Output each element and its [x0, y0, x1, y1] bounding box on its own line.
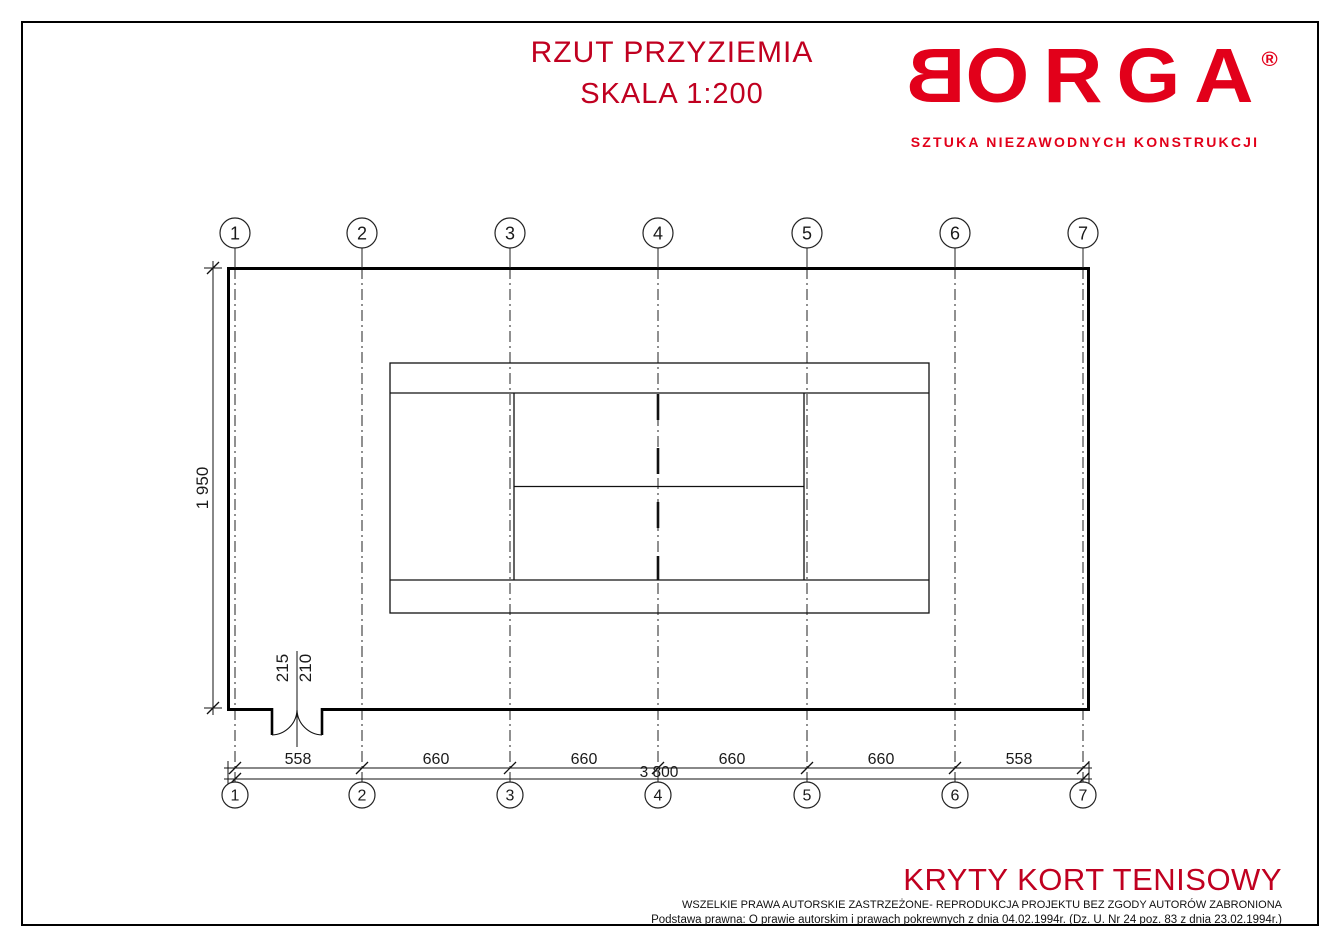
dimension-left: 1 950 [193, 261, 222, 715]
dim-segment-label: 660 [719, 751, 746, 768]
grid-bubble-label: 7 [1078, 224, 1088, 244]
door-dim-clear: 210 [296, 654, 315, 682]
court-outline [390, 363, 929, 613]
grid-bubble-label: 4 [653, 224, 663, 244]
door-swing-arc-left [272, 710, 297, 735]
grid-bubble-label: 2 [358, 788, 367, 805]
dim-segment-label: 558 [285, 751, 312, 768]
door-swing-arc-right [297, 710, 322, 735]
drawing-sheet: RZUT PRZYZIEMIA SKALA 1:200 BORGA® SZTUK… [0, 0, 1337, 943]
grid-bubble-label: 6 [950, 224, 960, 244]
title-block-footer: KRYTY KORT TENISOWY WSZELKIE PRAWA AUTOR… [651, 864, 1282, 927]
legal-basis: Podstawa prawna: O prawie autorskim i pr… [651, 913, 1282, 927]
grid-bubble-label: 3 [505, 224, 515, 244]
grid-bubbles-top: 1 2 3 4 5 6 7 [220, 218, 1098, 268]
grid-bubble-label: 7 [1079, 788, 1088, 805]
tennis-court [390, 363, 929, 613]
grid-bubble-label: 6 [951, 788, 960, 805]
dim-segment-label: 660 [571, 751, 598, 768]
copyright-notice: WSZELKIE PRAWA AUTORSKIE ZASTRZEŻONE- RE… [651, 899, 1282, 913]
dim-segment-label: 660 [868, 751, 895, 768]
grid-bubbles-bottom: 1 2 3 4 5 6 7 [222, 782, 1096, 808]
grid-bubble-label: 5 [802, 224, 812, 244]
dim-height-label: 1 950 [193, 467, 212, 510]
grid-bubble-label: 5 [803, 788, 812, 805]
dim-segment-label: 660 [423, 751, 450, 768]
grid-bubble-label: 3 [506, 788, 515, 805]
dim-segment-label: 558 [1006, 751, 1033, 768]
grid-bubble-label: 2 [357, 224, 367, 244]
grid-bubble-label: 1 [230, 224, 240, 244]
grid-bubble-label: 1 [231, 788, 240, 805]
entrance-door: 215 210 [272, 651, 322, 747]
grid-bubble-label: 4 [654, 788, 663, 805]
door-dim-width: 215 [273, 654, 292, 682]
floor-plan-drawing: 215 210 1 950 5 [0, 0, 1337, 943]
dim-total-label: 3 800 [640, 764, 679, 781]
project-name: KRYTY KORT TENISOWY [651, 864, 1282, 895]
